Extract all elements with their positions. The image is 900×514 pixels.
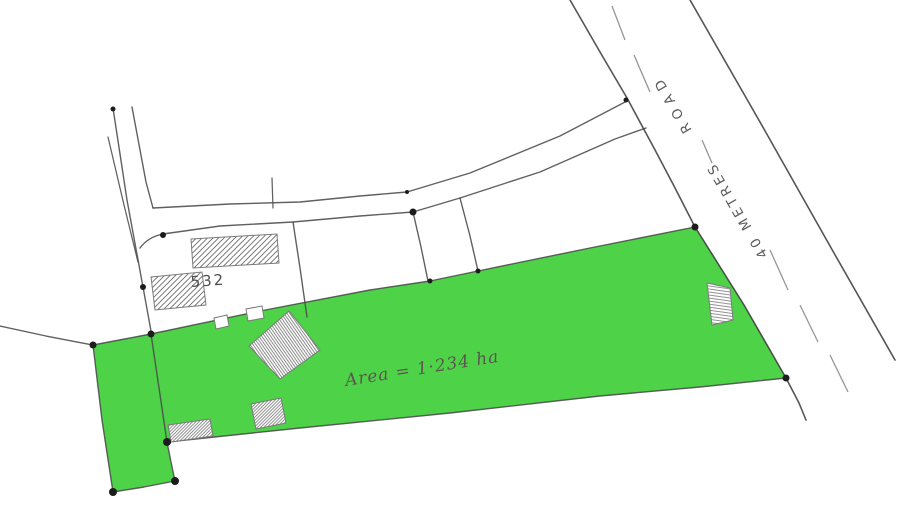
survey-marker-dot	[476, 269, 481, 274]
survey-marker-dot	[692, 224, 699, 231]
building-hatched-1	[191, 234, 279, 268]
survey-marker-dot	[148, 331, 155, 338]
building-hatched-6	[707, 283, 733, 325]
survey-marker-dot	[140, 284, 146, 290]
survey-marker-dot	[160, 232, 166, 238]
survey-marker-dot	[171, 477, 179, 485]
boundary-marker-box	[246, 306, 264, 321]
survey-marker-dot	[624, 98, 629, 103]
boundary-marker-box	[214, 315, 229, 329]
survey-marker-dot	[90, 342, 97, 349]
survey-marker-dot	[405, 190, 409, 194]
survey-marker-dot	[428, 279, 433, 284]
scanned-survey-plan-page: 40 METRES ROAD 532 Area = 1·234 ha	[0, 0, 900, 514]
survey-marker-dot	[109, 488, 117, 496]
survey-marker-dot	[111, 107, 116, 112]
survey-marker-dot	[783, 375, 790, 382]
building-hatched-4	[251, 398, 286, 429]
survey-marker-dot	[410, 209, 417, 216]
survey-marker-dot	[163, 438, 171, 446]
survey-plan-canvas: 40 METRES ROAD 532 Area = 1·234 ha	[0, 0, 900, 514]
parcel-number-label: 532	[190, 271, 226, 291]
